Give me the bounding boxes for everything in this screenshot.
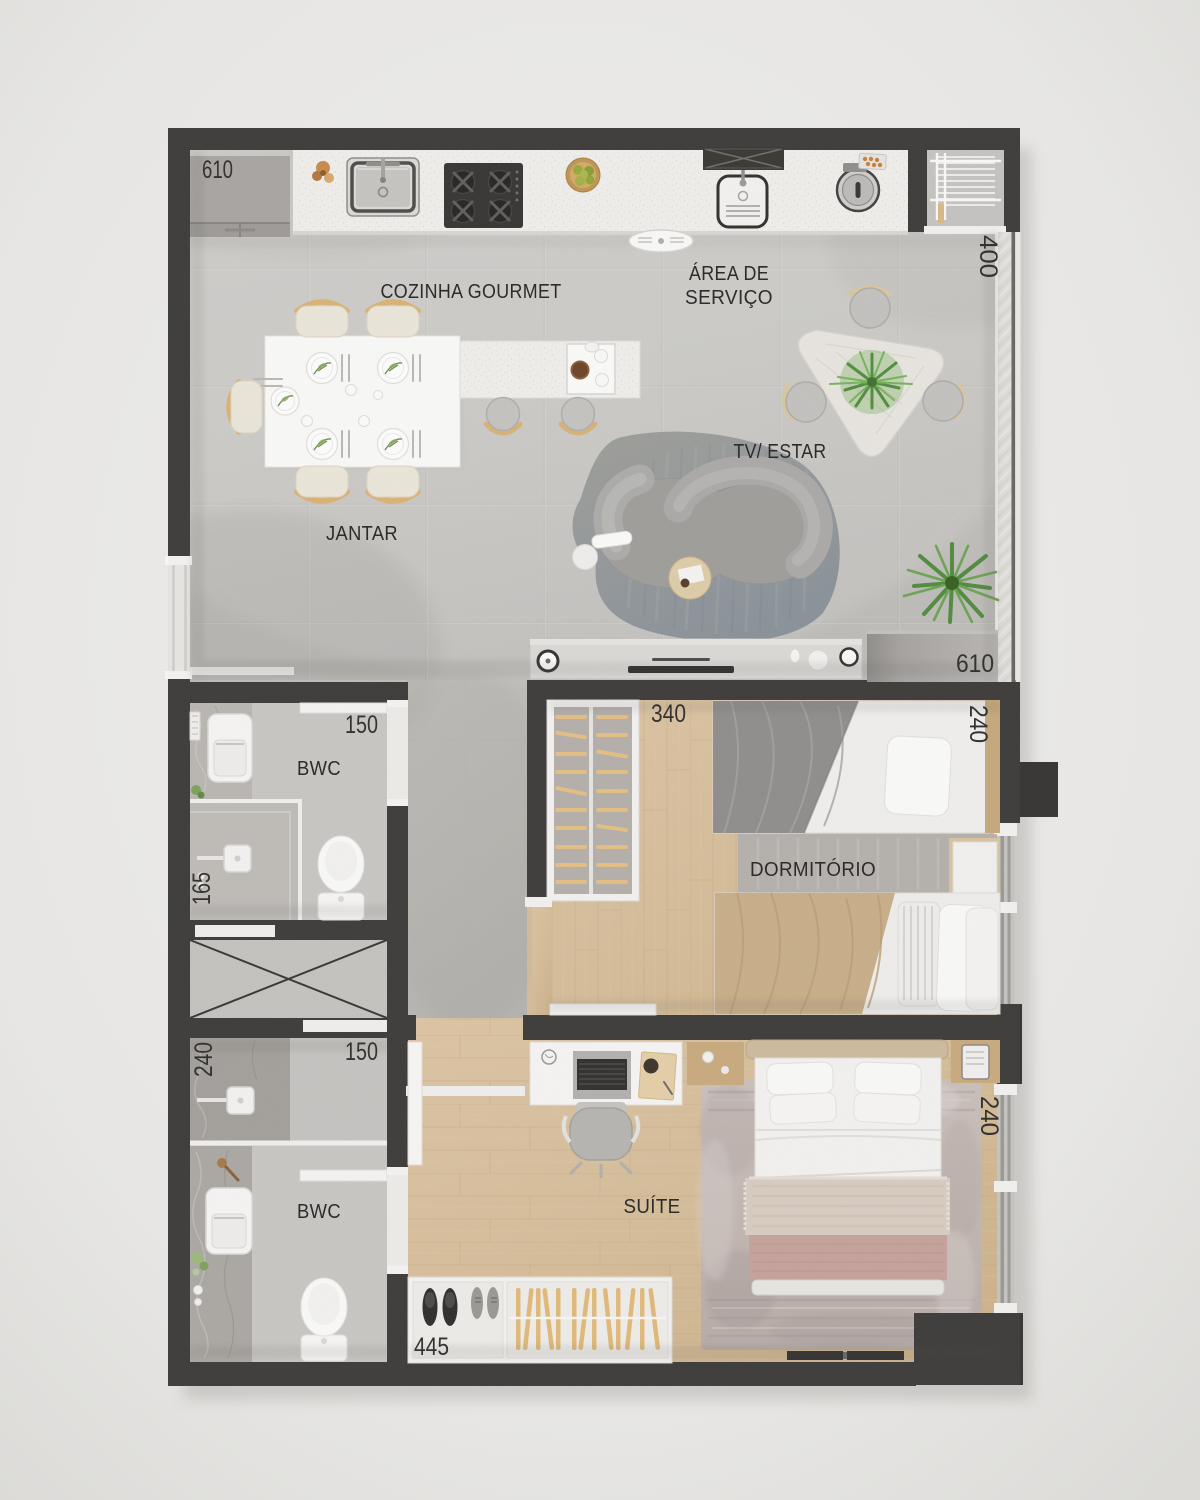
svg-text:445: 445 [414,1333,449,1361]
svg-text:610: 610 [956,650,994,678]
svg-text:150: 150 [345,711,378,739]
svg-text:150: 150 [345,1038,378,1066]
svg-text:165: 165 [188,872,216,905]
svg-text:TV/ ESTAR: TV/ ESTAR [734,441,827,463]
svg-text:240: 240 [964,705,992,743]
svg-text:JANTAR: JANTAR [326,523,398,545]
svg-text:ÁREA DE: ÁREA DE [689,262,769,285]
svg-text:BWC: BWC [297,758,341,780]
svg-text:240: 240 [975,1096,1003,1136]
svg-text:240: 240 [190,1042,218,1077]
svg-text:DORMITÓRIO: DORMITÓRIO [750,858,876,881]
svg-text:340: 340 [651,700,686,728]
svg-text:SUÍTE: SUÍTE [624,1195,681,1218]
svg-text:610: 610 [202,156,233,184]
svg-text:BWC: BWC [297,1201,341,1223]
svg-text:SERVIÇO: SERVIÇO [685,287,773,309]
svg-text:COZINHA GOURMET: COZINHA GOURMET [381,281,562,303]
svg-text:400: 400 [974,235,1002,278]
